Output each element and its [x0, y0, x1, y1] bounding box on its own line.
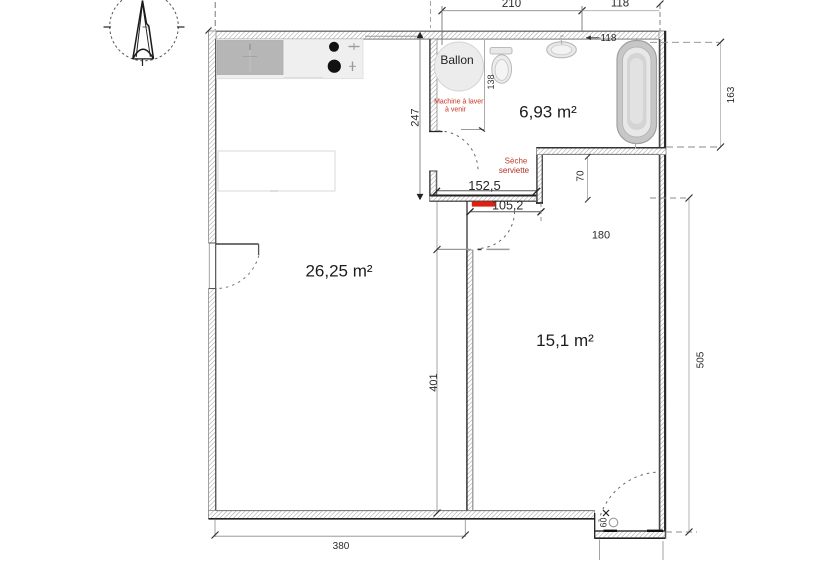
svg-text:Machine à laver: Machine à laver: [434, 98, 484, 105]
svg-text:15,1 m²: 15,1 m²: [536, 331, 594, 350]
svg-text:505: 505: [696, 351, 707, 368]
svg-text:26,25 m²: 26,25 m²: [305, 262, 372, 281]
svg-text:Ballon: Ballon: [440, 53, 473, 67]
svg-text:à venir: à venir: [445, 106, 467, 113]
svg-text:serviette: serviette: [499, 166, 530, 175]
svg-text:60: 60: [599, 517, 609, 527]
svg-text:380: 380: [333, 541, 350, 552]
svg-text:210: 210: [502, 0, 521, 10]
svg-text:152,5: 152,5: [468, 178, 501, 193]
svg-text:Sèche: Sèche: [505, 157, 528, 166]
svg-text:70: 70: [576, 170, 587, 182]
svg-text:247: 247: [410, 108, 422, 126]
svg-text:401: 401: [428, 373, 440, 391]
svg-text:180: 180: [592, 230, 610, 242]
svg-text:163: 163: [726, 86, 737, 103]
svg-text:118: 118: [611, 0, 629, 10]
svg-text:118: 118: [601, 33, 617, 44]
svg-text:105,2: 105,2: [492, 199, 523, 213]
svg-text:138: 138: [486, 74, 496, 89]
svg-text:6,93 m²: 6,93 m²: [519, 103, 577, 122]
